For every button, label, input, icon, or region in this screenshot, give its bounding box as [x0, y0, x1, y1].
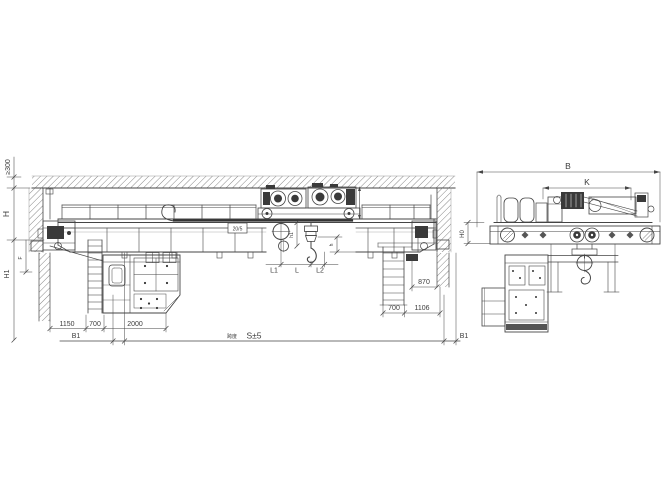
dim-700-ladder-label: 700: [388, 305, 400, 312]
capacity-label: 20/5: [233, 227, 243, 233]
dim-2000-label: 2000: [127, 321, 143, 328]
h-label: h: [329, 243, 335, 246]
L1-label: L1: [270, 268, 278, 275]
clearance-label: ≥300: [5, 159, 12, 175]
H0-label: H0: [460, 230, 466, 238]
hook-spacing-dimensions: L1 L L2: [266, 240, 338, 275]
dim-700-1106: 700 1106: [381, 287, 442, 317]
crane-engineering-drawing: 20/5 h1: [0, 0, 671, 500]
h1-label: h1: [289, 232, 295, 238]
ceiling-beam: [32, 176, 455, 188]
H-label: H: [1, 211, 11, 217]
cab-ladder: [88, 240, 102, 313]
B1-left-label: B1: [72, 333, 81, 340]
operator-cab: [103, 255, 180, 313]
B-label: B: [565, 161, 571, 171]
dim-1106-label: 1106: [414, 305, 429, 312]
span-word-label: 跨度: [227, 333, 237, 340]
F-label: F: [18, 256, 24, 259]
hook-assembly: h1 h: [272, 220, 356, 262]
dim-1150-label: 1150: [59, 321, 74, 328]
L2-label: L2: [316, 268, 324, 275]
hook-block-side: [572, 244, 597, 284]
dim-H0: H0: [460, 220, 490, 245]
dim-bottom-left: 1150 700 2000: [48, 313, 168, 332]
dim-870-label: 870: [418, 279, 430, 286]
walkway-railing: [62, 205, 430, 219]
end-carriage: [490, 226, 660, 244]
span-value-label: S±5: [246, 331, 261, 341]
cabinet-side: [482, 288, 505, 326]
dim-870: 870: [410, 260, 439, 291]
dim-700-cab-label: 700: [89, 321, 101, 328]
crab-side-machinery: [494, 192, 654, 223]
H1-label: H1: [4, 269, 11, 278]
L-label: L: [295, 268, 299, 275]
right-wall-column: [406, 188, 451, 287]
side-view: B K H0: [460, 161, 660, 332]
cab-side: [505, 255, 548, 332]
platform-frame-side: [547, 244, 619, 292]
capacity-plate: 20/5: [228, 223, 247, 233]
B1-right-label: B1: [460, 333, 469, 340]
cab-hangers: [146, 253, 176, 263]
left-wall-column: [29, 188, 50, 321]
dim-span: B1 跨度 S±5 B1: [60, 253, 468, 345]
K-label: K: [584, 177, 590, 187]
